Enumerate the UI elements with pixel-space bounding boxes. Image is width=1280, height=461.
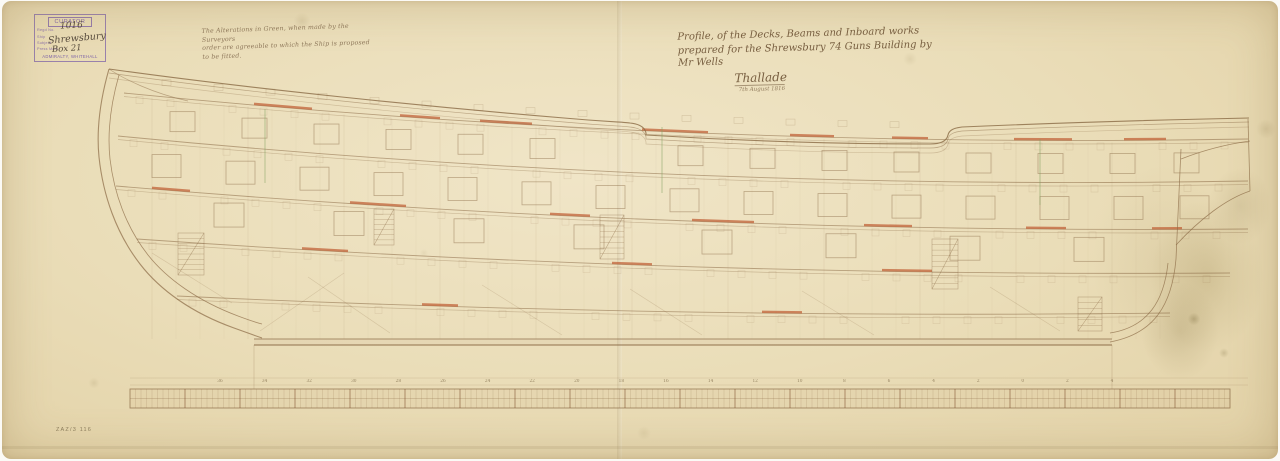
alterations-note: The Alterations in Green, when made by t… xyxy=(201,22,370,62)
svg-text:6: 6 xyxy=(888,379,891,384)
ship-profile-drawing: 36343230282624222018161412108642024 xyxy=(2,1,1278,459)
svg-text:4: 4 xyxy=(1111,379,1114,384)
svg-text:34: 34 xyxy=(262,379,268,384)
svg-text:28: 28 xyxy=(396,379,402,384)
svg-text:36: 36 xyxy=(217,379,223,384)
curator-stamp: CURATOR Regd No. Ship Subject Press Mark… xyxy=(30,11,150,67)
svg-text:22: 22 xyxy=(529,379,535,384)
handwritten-press-mark: Box 21 xyxy=(52,43,82,55)
svg-text:18: 18 xyxy=(619,379,625,384)
stamp-label-regd-no: Regd No. xyxy=(37,28,55,32)
svg-text:10: 10 xyxy=(797,379,803,384)
title-inscription: Profile, of the Decks, Beams and Inboard… xyxy=(677,25,889,94)
svg-text:8: 8 xyxy=(843,379,846,384)
svg-text:2: 2 xyxy=(1066,379,1069,384)
scanned-ship-plan: 36343230282624222018161412108642024 CURA… xyxy=(0,0,1280,461)
svg-text:26: 26 xyxy=(440,379,446,384)
svg-text:0: 0 xyxy=(1021,379,1024,384)
svg-text:16: 16 xyxy=(663,379,669,384)
signature: Thallade xyxy=(734,70,784,86)
svg-text:20: 20 xyxy=(574,379,580,384)
svg-text:14: 14 xyxy=(708,379,714,384)
paper-sheet: 36343230282624222018161412108642024 CURA… xyxy=(2,1,1278,459)
handwritten-reg-no: 1016 xyxy=(60,20,83,31)
svg-text:24: 24 xyxy=(485,379,491,384)
svg-text:4: 4 xyxy=(932,379,935,384)
stamp-footer: ADMIRALTY, WHITEHALL xyxy=(35,54,105,59)
svg-text:32: 32 xyxy=(306,379,312,384)
svg-text:12: 12 xyxy=(752,379,758,384)
reference-number: ZAZ/3 116 xyxy=(56,427,92,433)
svg-text:30: 30 xyxy=(351,379,357,384)
svg-text:2: 2 xyxy=(977,379,980,384)
stamp-label-ship: Ship xyxy=(37,35,45,39)
